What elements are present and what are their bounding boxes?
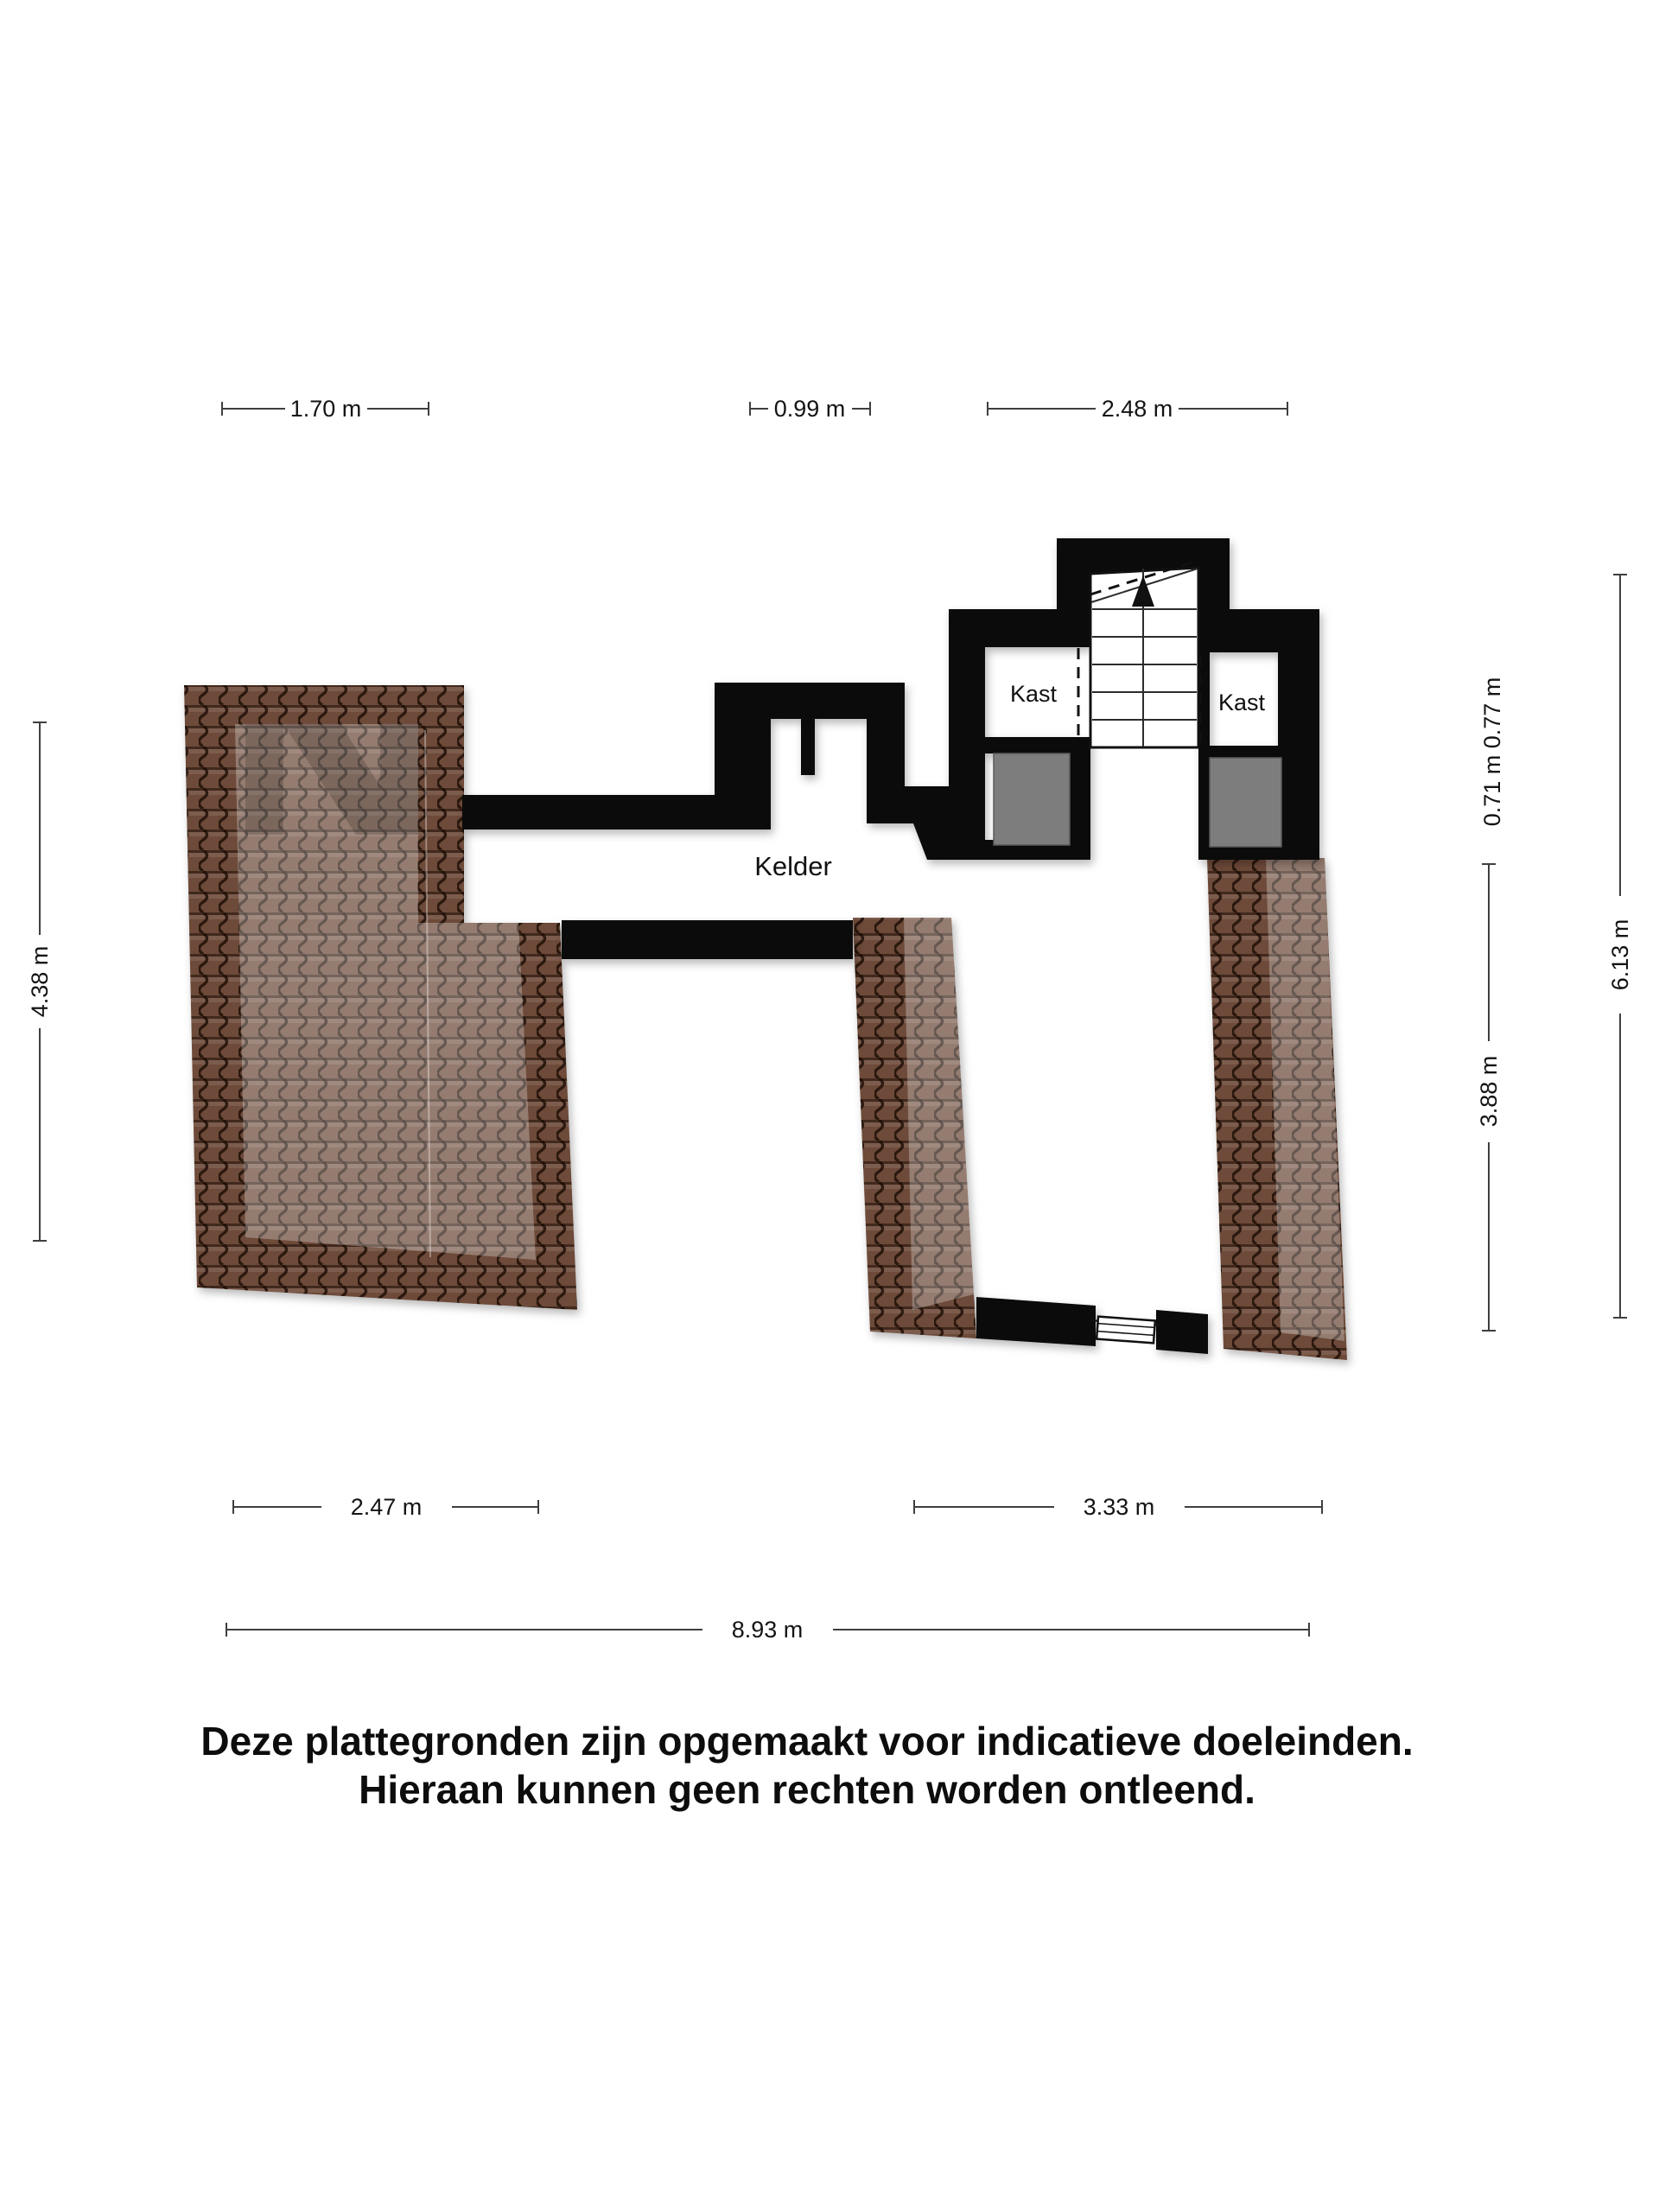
wall-stair-bump-right-fill — [1198, 611, 1230, 652]
dimension-bottom-2: 3.33 m — [914, 1494, 1322, 1520]
wall-niche-cap — [715, 683, 905, 719]
wall-bottom-right-of-door — [1156, 1310, 1208, 1354]
wall-above-gray-left — [985, 737, 1090, 753]
dimension-left-1: 4.38 m — [27, 722, 53, 1241]
dimension-left-1-label: 4.38 m — [27, 946, 53, 1018]
wall-niche-left — [715, 719, 771, 828]
tiled-area-middle-highlight — [904, 918, 974, 1310]
dimension-right-3: 6.13 m — [1607, 575, 1633, 1318]
room-label-kast-right: Kast — [1218, 690, 1266, 715]
dimension-top-3: 2.48 m — [988, 396, 1287, 422]
dimension-top-2-label: 0.99 m — [774, 396, 846, 422]
wall-stair-shoulder-right — [1230, 609, 1319, 652]
wall-bottom-left-of-door — [976, 1297, 1096, 1346]
floor-plan-svg: Kelder Kast Kast 1.70 m 0.99 m 2.48 m 4.… — [0, 0, 1659, 2212]
dimension-right-1: 0.71 m 0.77 m — [1479, 677, 1505, 827]
dimension-right-2-label: 3.88 m — [1476, 1056, 1502, 1128]
wall-stair-shoulder-left — [949, 609, 1090, 647]
wall-niche-right — [867, 719, 905, 823]
room-label-kast-left: Kast — [1010, 681, 1058, 707]
dimension-bottom-1-label: 2.47 m — [351, 1494, 423, 1520]
wall-kelder-south — [562, 920, 853, 959]
dimension-top-1: 1.70 m — [222, 396, 429, 422]
room-label-kelder: Kelder — [754, 851, 832, 881]
basement-door-symbol — [1090, 1316, 1162, 1344]
tiled-area-left — [184, 685, 577, 1310]
floor-plan-page: Kelder Kast Kast 1.70 m 0.99 m 2.48 m 4.… — [0, 0, 1659, 2212]
disclaimer-line-1: Deze plattegronden zijn opgemaakt voor i… — [200, 1719, 1413, 1764]
dimension-bottom-3: 8.93 m — [226, 1617, 1309, 1643]
dimension-bottom-1: 2.47 m — [233, 1494, 538, 1520]
wall-niche-stub — [801, 719, 815, 775]
wall-above-gray-right — [1198, 746, 1278, 758]
staircase — [1090, 562, 1198, 747]
gray-block-right — [1210, 758, 1281, 847]
wall-stairblock-east — [1278, 652, 1319, 860]
dimension-bottom-3-label: 8.93 m — [732, 1617, 804, 1643]
tiled-area-right — [1207, 858, 1347, 1360]
dimension-right-1-label: 0.71 m 0.77 m — [1479, 677, 1505, 827]
dimension-top-2: 0.99 m — [750, 396, 870, 422]
gray-block-left — [994, 753, 1070, 845]
tiled-area-middle — [853, 918, 976, 1338]
dimension-bottom-2-label: 3.33 m — [1084, 1494, 1155, 1520]
dimension-top-3-label: 2.48 m — [1102, 396, 1173, 422]
wall-below-gray-right — [1198, 847, 1319, 860]
dimension-top-1-label: 1.70 m — [290, 396, 362, 422]
dimension-right-3-label: 6.13 m — [1607, 919, 1633, 991]
wall-channel-bottom — [905, 786, 949, 823]
disclaimer-line-2: Hieraan kunnen geen rechten worden ontle… — [359, 1767, 1255, 1812]
wall-right-of-gray-left — [1070, 737, 1090, 860]
wall-stairblock-west — [949, 647, 985, 823]
dimension-right-2: 3.88 m — [1476, 864, 1502, 1331]
